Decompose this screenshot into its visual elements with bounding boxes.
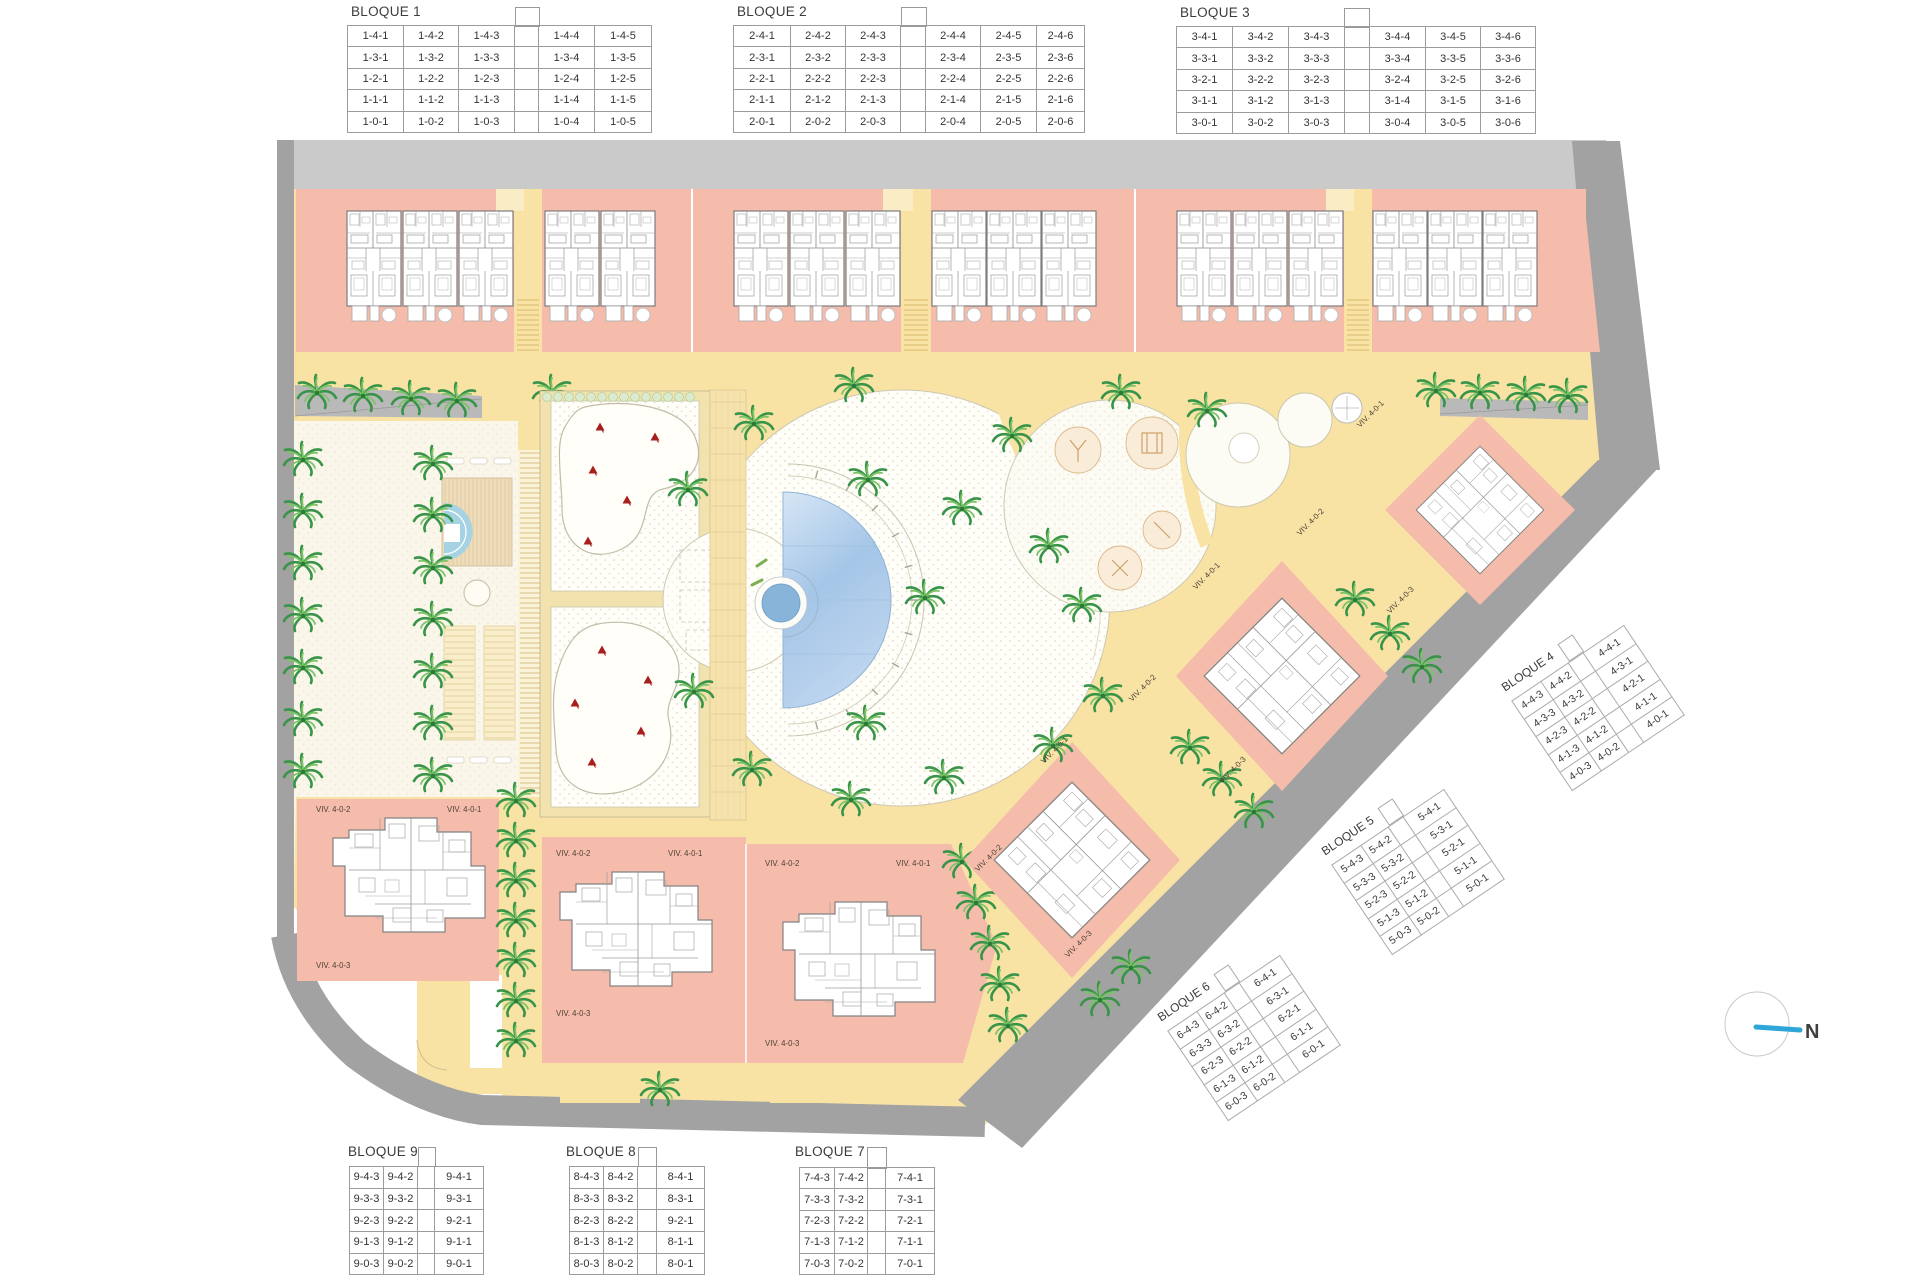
svg-text:VIV. 4-0-3: VIV. 4-0-3: [316, 961, 350, 970]
svg-text:VIV. 4-0-2: VIV. 4-0-2: [556, 849, 590, 858]
svg-text:VIV. 4-0-1: VIV. 4-0-1: [668, 849, 702, 858]
svg-text:VIV. 4-0-2: VIV. 4-0-2: [765, 859, 799, 868]
svg-text:VIV. 4-0-1: VIV. 4-0-1: [896, 859, 930, 868]
svg-text:VIV. 4-0-2: VIV. 4-0-2: [316, 805, 350, 814]
svg-text:N: N: [1805, 1021, 1819, 1043]
svg-text:VIV. 4-0-1: VIV. 4-0-1: [447, 805, 481, 814]
svg-text:VIV. 4-0-3: VIV. 4-0-3: [765, 1039, 799, 1048]
svg-text:VIV. 4-0-3: VIV. 4-0-3: [556, 1009, 590, 1018]
